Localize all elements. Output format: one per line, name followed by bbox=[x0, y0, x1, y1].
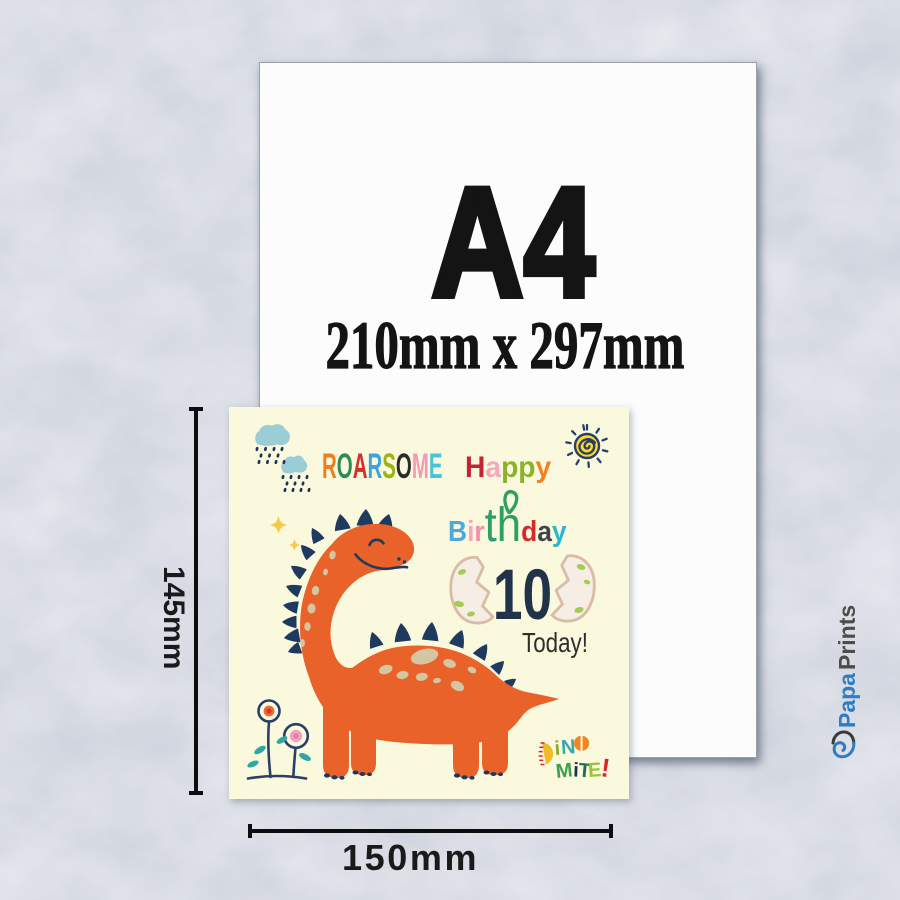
svg-text:Today!: Today! bbox=[522, 628, 588, 659]
svg-text:10: 10 bbox=[493, 556, 552, 635]
svg-text:ROARSOME: ROARSOME bbox=[322, 447, 443, 486]
svg-text:M: M bbox=[555, 759, 574, 783]
svg-text:N: N bbox=[560, 736, 576, 759]
svg-text:Happy: Happy bbox=[465, 451, 552, 484]
